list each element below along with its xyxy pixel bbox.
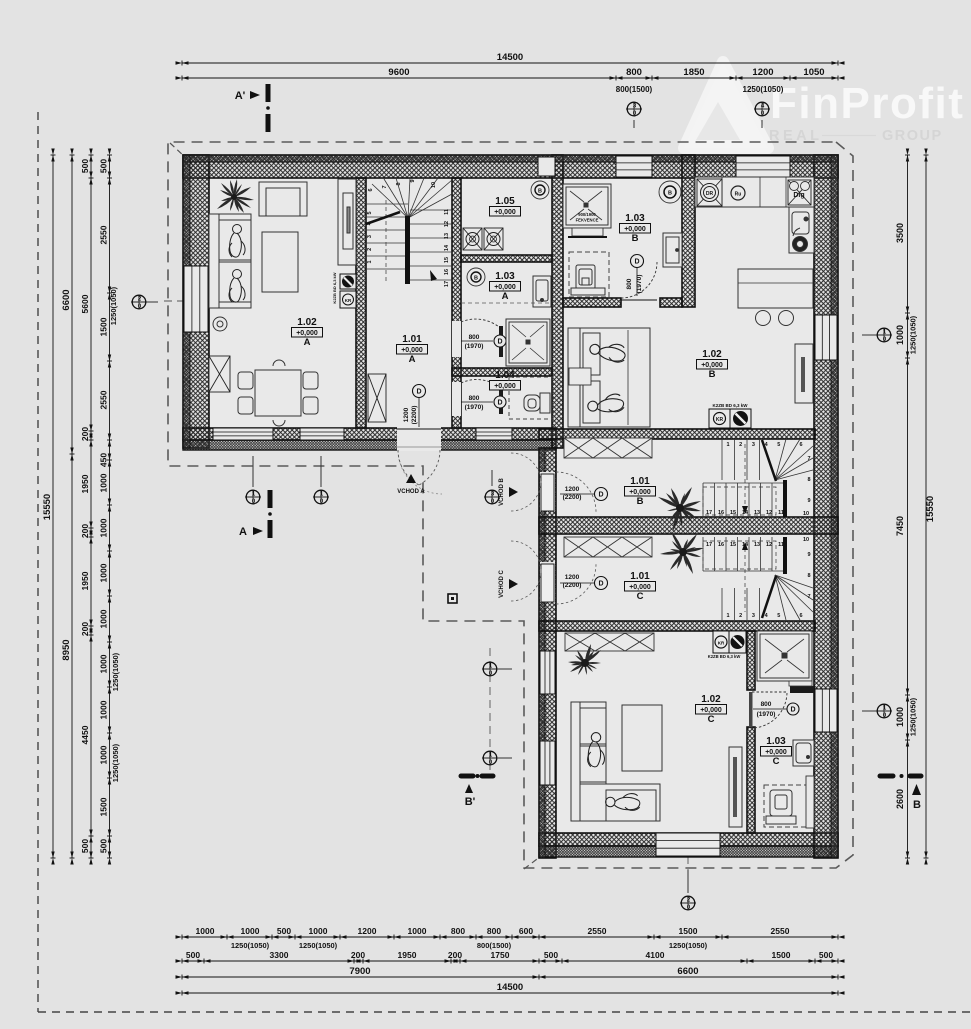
- svg-text:800: 800: [451, 926, 465, 936]
- svg-text:C: C: [708, 714, 715, 725]
- svg-text:8: 8: [396, 182, 402, 185]
- svg-text:1: 1: [726, 613, 729, 619]
- svg-text:16: 16: [718, 510, 724, 516]
- svg-text:A: A: [239, 526, 247, 538]
- svg-text:7450: 7450: [895, 516, 905, 536]
- svg-text:17: 17: [706, 542, 712, 548]
- svg-text:8: 8: [807, 573, 810, 579]
- svg-text:800: 800: [469, 395, 480, 402]
- svg-text:KR: KR: [716, 417, 724, 423]
- svg-text:500: 500: [277, 926, 291, 936]
- svg-text:1.05: 1.05: [495, 196, 515, 207]
- svg-text:1000: 1000: [895, 325, 905, 345]
- svg-text:1.01: 1.01: [402, 334, 422, 345]
- svg-text:B: B: [632, 233, 639, 244]
- svg-text:1200: 1200: [403, 407, 410, 422]
- svg-text:D: D: [598, 492, 603, 499]
- svg-text:1.02: 1.02: [297, 317, 317, 328]
- svg-text:500: 500: [80, 839, 90, 853]
- svg-text:7: 7: [807, 594, 810, 600]
- svg-text:1250(1050): 1250(1050): [111, 743, 120, 782]
- svg-text:6: 6: [368, 188, 374, 191]
- svg-text:VCHOD A: VCHOD A: [397, 489, 425, 495]
- svg-text:B: B: [668, 191, 672, 197]
- svg-text:1: 1: [367, 260, 373, 263]
- svg-text:14: 14: [444, 244, 450, 251]
- svg-text:5: 5: [777, 442, 780, 448]
- svg-text:C: C: [637, 591, 644, 602]
- svg-text:1.03: 1.03: [495, 271, 515, 282]
- svg-text:15: 15: [730, 510, 736, 516]
- svg-text:1000: 1000: [99, 518, 109, 537]
- svg-text:2550: 2550: [99, 225, 109, 244]
- svg-text:800: 800: [761, 701, 772, 708]
- svg-text:3500: 3500: [895, 223, 905, 243]
- svg-text:800: 800: [626, 67, 642, 78]
- svg-text:1250(1050): 1250(1050): [111, 652, 120, 691]
- svg-text:1250(1050): 1250(1050): [669, 941, 708, 950]
- svg-text:KR: KR: [345, 298, 352, 303]
- svg-text:13: 13: [754, 542, 760, 548]
- svg-text:15: 15: [444, 257, 450, 263]
- svg-text:B: B: [709, 369, 716, 380]
- svg-text:3: 3: [367, 235, 373, 238]
- svg-text:8: 8: [807, 477, 810, 483]
- svg-text:2550: 2550: [771, 926, 790, 936]
- svg-text:10: 10: [803, 511, 809, 517]
- svg-text:14: 14: [742, 510, 749, 516]
- svg-text:1200: 1200: [358, 926, 377, 936]
- svg-text:10: 10: [803, 537, 809, 543]
- svg-text:K2ZB BD 6,3 kW: K2ZB BD 6,3 kW: [712, 403, 748, 408]
- svg-text:9: 9: [807, 552, 810, 558]
- svg-text:C: C: [773, 756, 780, 767]
- svg-text:1950: 1950: [80, 474, 90, 493]
- svg-text:500: 500: [99, 839, 109, 853]
- svg-text:11: 11: [778, 542, 784, 548]
- svg-text:(1970): (1970): [465, 404, 484, 411]
- svg-text:1.02: 1.02: [702, 349, 722, 360]
- svg-text:1.03: 1.03: [766, 736, 786, 747]
- svg-text:200: 200: [448, 950, 462, 960]
- svg-text:1250(1050): 1250(1050): [909, 697, 918, 736]
- svg-text:5: 5: [777, 613, 780, 619]
- svg-text:7: 7: [382, 185, 388, 188]
- svg-text:3: 3: [752, 442, 755, 448]
- svg-text:D: D: [497, 400, 502, 407]
- svg-text:DR: DR: [706, 191, 714, 197]
- svg-text:10: 10: [431, 182, 437, 188]
- svg-text:2: 2: [367, 248, 373, 251]
- svg-text:1500: 1500: [772, 950, 791, 960]
- svg-text:B: B: [637, 496, 644, 507]
- svg-text:5600: 5600: [80, 294, 90, 313]
- svg-text:(1970): (1970): [465, 343, 484, 350]
- svg-text:17: 17: [444, 281, 450, 287]
- svg-text:A: A: [502, 291, 509, 302]
- svg-text:1250(1050): 1250(1050): [909, 315, 918, 354]
- svg-text:1.03: 1.03: [625, 213, 645, 224]
- svg-text:Ru: Ru: [735, 192, 742, 198]
- svg-text:500: 500: [80, 159, 90, 173]
- svg-text:1000: 1000: [99, 609, 109, 628]
- svg-text:D: D: [634, 259, 639, 266]
- svg-text:5: 5: [367, 211, 373, 214]
- svg-text:(1970): (1970): [757, 711, 776, 718]
- svg-text:B: B: [474, 276, 478, 282]
- svg-text:2550: 2550: [99, 390, 109, 409]
- svg-text:1.04: 1.04: [495, 370, 515, 381]
- svg-text:500: 500: [186, 950, 200, 960]
- svg-text:6600: 6600: [61, 289, 72, 310]
- svg-text:12: 12: [766, 542, 772, 548]
- svg-text:9600: 9600: [388, 67, 409, 78]
- svg-text:2: 2: [739, 442, 742, 448]
- svg-text:7900: 7900: [349, 966, 370, 977]
- svg-text:B: B: [913, 799, 921, 811]
- svg-text:1250(1050): 1250(1050): [743, 85, 784, 94]
- svg-text:A: A: [304, 337, 311, 348]
- svg-text:(2200): (2200): [411, 406, 418, 425]
- svg-text:2: 2: [739, 613, 742, 619]
- svg-text:500: 500: [544, 950, 558, 960]
- svg-text:450: 450: [99, 453, 109, 467]
- svg-text:1000: 1000: [99, 745, 109, 764]
- svg-text:200: 200: [80, 524, 90, 538]
- svg-text:1500: 1500: [99, 797, 109, 816]
- svg-text:1000: 1000: [99, 473, 109, 492]
- svg-text:GROUP: GROUP: [882, 128, 943, 144]
- svg-text:B: B: [538, 189, 542, 195]
- svg-text:600: 600: [519, 926, 533, 936]
- svg-text:15: 15: [730, 542, 736, 548]
- svg-text:15550: 15550: [42, 494, 53, 520]
- svg-text:2550: 2550: [588, 926, 607, 936]
- svg-text:D: D: [598, 581, 603, 588]
- svg-text:(2200): (2200): [563, 494, 582, 501]
- svg-text:11: 11: [778, 510, 784, 516]
- svg-text:3: 3: [752, 613, 755, 619]
- svg-text:1200: 1200: [565, 574, 580, 581]
- svg-text:1.02: 1.02: [701, 694, 721, 705]
- svg-text:500: 500: [99, 159, 109, 173]
- svg-text:1950: 1950: [398, 950, 417, 960]
- svg-text:16: 16: [718, 542, 724, 548]
- svg-text:1: 1: [726, 442, 729, 448]
- svg-text:VCHOD C: VCHOD C: [499, 570, 505, 598]
- svg-text:8950: 8950: [61, 639, 72, 660]
- svg-text:4450: 4450: [80, 725, 90, 744]
- svg-text:+0,000: +0,000: [494, 383, 516, 390]
- svg-text:1000: 1000: [99, 654, 109, 673]
- svg-text:6600: 6600: [677, 966, 698, 977]
- svg-text:13: 13: [754, 510, 760, 516]
- svg-text:200: 200: [80, 622, 90, 636]
- svg-text:VCHOD B: VCHOD B: [499, 478, 505, 506]
- svg-text:A: A: [409, 354, 416, 365]
- svg-text:1200: 1200: [752, 67, 773, 78]
- svg-text:FinProfit: FinProfit: [770, 79, 964, 128]
- svg-text:A': A': [235, 90, 246, 102]
- svg-text:800: 800: [487, 926, 501, 936]
- svg-text:(1970): (1970): [636, 275, 643, 294]
- svg-text:1200: 1200: [565, 486, 580, 493]
- svg-text:500: 500: [819, 950, 833, 960]
- svg-text:1250(1050): 1250(1050): [299, 941, 338, 950]
- svg-text:200: 200: [351, 950, 365, 960]
- svg-text:3300: 3300: [270, 950, 289, 960]
- svg-text:K2ZB BD 6,3 kW: K2ZB BD 6,3 kW: [708, 654, 741, 659]
- svg-text:6: 6: [799, 442, 802, 448]
- svg-text:1.01: 1.01: [630, 476, 650, 487]
- svg-text:FEKVENCE: FEKVENCE: [576, 218, 599, 223]
- svg-text:1000: 1000: [99, 700, 109, 719]
- svg-text:1000: 1000: [895, 707, 905, 727]
- svg-text:1000: 1000: [99, 563, 109, 582]
- svg-text:2600: 2600: [895, 789, 905, 809]
- svg-text:7: 7: [807, 456, 810, 462]
- svg-text:D: D: [497, 339, 502, 346]
- svg-text:1.01: 1.01: [630, 571, 650, 582]
- svg-text:13: 13: [444, 233, 450, 239]
- svg-text:K2ZB BD 6,3 kW: K2ZB BD 6,3 kW: [332, 272, 337, 303]
- svg-text:11: 11: [444, 209, 450, 215]
- svg-text:D: D: [790, 707, 795, 714]
- svg-text:9: 9: [410, 179, 416, 182]
- svg-text:14: 14: [742, 542, 749, 548]
- svg-text:800: 800: [626, 278, 633, 289]
- svg-text:1050: 1050: [803, 67, 824, 78]
- svg-text:800: 800: [469, 334, 480, 341]
- svg-text:1950: 1950: [80, 571, 90, 590]
- svg-text:D: D: [416, 389, 421, 396]
- svg-text:1500: 1500: [99, 317, 109, 336]
- svg-text:12: 12: [766, 510, 772, 516]
- svg-text:Dig: Dig: [793, 192, 804, 199]
- svg-text:1000: 1000: [241, 926, 260, 936]
- svg-text:17: 17: [706, 510, 712, 516]
- svg-text:800(1500): 800(1500): [616, 85, 653, 94]
- svg-text:800(1500): 800(1500): [477, 941, 512, 950]
- svg-text:1000: 1000: [408, 926, 427, 936]
- svg-text:900/1900: 900/1900: [578, 212, 596, 217]
- svg-text:6: 6: [799, 613, 802, 619]
- svg-text:1850: 1850: [683, 67, 704, 78]
- svg-text:B': B': [465, 796, 476, 808]
- svg-text:16: 16: [444, 269, 450, 275]
- svg-text:15550: 15550: [925, 496, 936, 522]
- svg-text:1500: 1500: [679, 926, 698, 936]
- svg-text:200: 200: [80, 427, 90, 441]
- svg-text:1000: 1000: [309, 926, 328, 936]
- svg-text:14500: 14500: [497, 52, 523, 63]
- svg-text:9: 9: [807, 498, 810, 504]
- svg-text:1750: 1750: [491, 950, 510, 960]
- svg-text:KR: KR: [718, 641, 725, 646]
- svg-text:1000: 1000: [196, 926, 215, 936]
- svg-text:12: 12: [444, 221, 450, 227]
- svg-text:+0,000: +0,000: [494, 209, 516, 216]
- svg-text:1250(1050): 1250(1050): [109, 286, 118, 325]
- svg-text:1250(1050): 1250(1050): [231, 941, 270, 950]
- svg-text:14500: 14500: [497, 982, 523, 993]
- svg-text:4100: 4100: [646, 950, 665, 960]
